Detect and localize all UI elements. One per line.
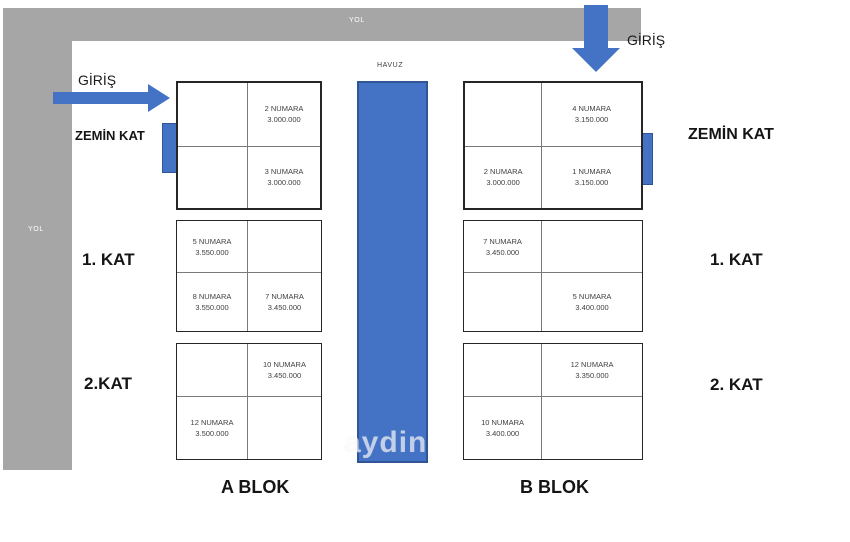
unit-number: 2 NUMARA (265, 103, 304, 114)
a-block-entrance-marker (162, 123, 177, 173)
unit-number: 12 NUMARA (191, 417, 234, 428)
unit-number: 5 NUMARA (573, 291, 612, 302)
unit-number: 7 NUMARA (265, 291, 304, 302)
unit-cell: 2 NUMARA3.000.000 (465, 147, 542, 208)
unit-number: 4 NUMARA (572, 103, 611, 114)
b-block-first-floor-grid: 7 NUMARA3.450.0005 NUMARA3.400.000 (463, 220, 643, 332)
unit-cell: 4 NUMARA3.150.000 (542, 83, 641, 147)
watermark-text: aydin (344, 426, 427, 460)
unit-price: 3.000.000 (486, 177, 519, 188)
unit-cell (177, 344, 248, 397)
road-left (3, 8, 72, 470)
unit-cell (248, 221, 321, 273)
unit-cell: 5 NUMARA3.550.000 (177, 221, 248, 273)
unit-cell: 7 NUMARA3.450.000 (464, 221, 542, 273)
unit-price: 3.550.000 (195, 302, 228, 313)
unit-cell (542, 221, 642, 273)
site-plan-diagram: YOL YOL HAVUZ aydin GİRİŞ GİRİŞ ZEMİN KA… (0, 0, 850, 542)
unit-number: 7 NUMARA (483, 236, 522, 247)
unit-number: 12 NUMARA (571, 359, 614, 370)
unit-price: 3.400.000 (486, 428, 519, 439)
unit-number: 2 NUMARA (484, 166, 523, 177)
unit-number: 10 NUMARA (263, 359, 306, 370)
entrance-left-arrow-icon (148, 84, 170, 112)
a-block-name: A BLOK (221, 477, 289, 498)
unit-price: 3.450.000 (268, 302, 301, 313)
unit-cell: 12 NUMARA3.500.000 (177, 397, 248, 459)
b-block-second-floor-grid: 12 NUMARA3.350.00010 NUMARA3.400.000 (463, 343, 643, 460)
unit-cell (465, 83, 542, 147)
unit-cell: 10 NUMARA3.400.000 (464, 397, 542, 459)
unit-cell (178, 83, 248, 147)
b-block-name: B BLOK (520, 477, 589, 498)
road-left-label: YOL (28, 226, 44, 233)
unit-cell: 12 NUMARA3.350.000 (542, 344, 642, 397)
pool (357, 81, 428, 463)
unit-cell: 10 NUMARA3.450.000 (248, 344, 321, 397)
unit-cell: 3 NUMARA3.000.000 (248, 147, 320, 208)
unit-cell: 2 NUMARA3.000.000 (248, 83, 320, 147)
a-block-ground-floor-label: ZEMİN KAT (75, 128, 145, 143)
unit-price: 3.450.000 (486, 247, 519, 258)
unit-price: 3.000.000 (267, 114, 300, 125)
a-block-second-floor-grid: 10 NUMARA3.450.00012 NUMARA3.500.000 (176, 343, 322, 460)
unit-price: 3.500.000 (195, 428, 228, 439)
a-block-ground-floor-grid: 2 NUMARA3.000.0003 NUMARA3.000.000 (176, 81, 322, 210)
unit-number: 8 NUMARA (193, 291, 232, 302)
entrance-left-label: GİRİŞ (78, 72, 116, 88)
entrance-left-arrow-body (53, 92, 148, 104)
unit-cell (542, 397, 642, 459)
unit-price: 3.150.000 (575, 177, 608, 188)
unit-cell (464, 344, 542, 397)
unit-number: 3 NUMARA (265, 166, 304, 177)
road-top (3, 8, 641, 41)
road-top-label: YOL (349, 17, 365, 24)
unit-cell: 5 NUMARA3.400.000 (542, 273, 642, 331)
b-block-second-floor-label: 2. KAT (710, 375, 763, 395)
a-block-second-floor-label: 2.KAT (84, 374, 132, 394)
entrance-right-arrow-body (584, 5, 608, 48)
unit-cell: 1 NUMARA3.150.000 (542, 147, 641, 208)
unit-number: 10 NUMARA (481, 417, 524, 428)
unit-cell: 8 NUMARA3.550.000 (177, 273, 248, 331)
unit-cell (178, 147, 248, 208)
entrance-right-arrow-icon (572, 48, 620, 72)
unit-price: 3.550.000 (195, 247, 228, 258)
b-block-first-floor-label: 1. KAT (710, 250, 763, 270)
entrance-right-label: GİRİŞ (627, 32, 665, 48)
b-block-ground-floor-label: ZEMİN KAT (688, 126, 774, 144)
a-block-first-floor-label: 1. KAT (82, 250, 135, 270)
pool-label: HAVUZ (377, 62, 403, 69)
a-block-first-floor-grid: 5 NUMARA3.550.0008 NUMARA3.550.0007 NUMA… (176, 220, 322, 332)
unit-number: 5 NUMARA (193, 236, 232, 247)
unit-price: 3.000.000 (267, 177, 300, 188)
unit-cell: 7 NUMARA3.450.000 (248, 273, 321, 331)
unit-price: 3.400.000 (575, 302, 608, 313)
unit-number: 1 NUMARA (572, 166, 611, 177)
unit-cell (464, 273, 542, 331)
b-block-ground-floor-grid: 4 NUMARA3.150.0002 NUMARA3.000.0001 NUMA… (463, 81, 643, 210)
unit-price: 3.350.000 (575, 370, 608, 381)
unit-price: 3.450.000 (268, 370, 301, 381)
unit-price: 3.150.000 (575, 114, 608, 125)
unit-cell (248, 397, 321, 459)
